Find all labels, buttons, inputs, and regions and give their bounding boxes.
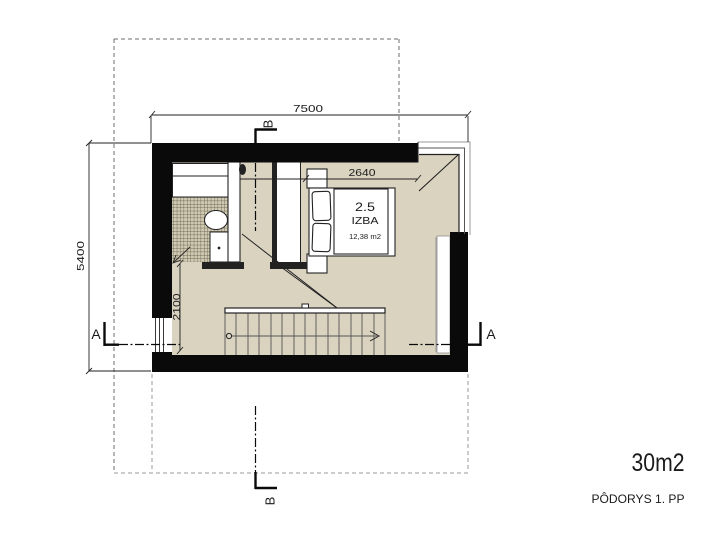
section-marker-a-left: A bbox=[91, 322, 180, 346]
sink-tap bbox=[218, 247, 221, 250]
section-b-label: B bbox=[263, 497, 278, 506]
left-window bbox=[156, 318, 164, 352]
dimension-overall-width: 7500 bbox=[149, 103, 471, 143]
dim-bed-text: 2640 bbox=[349, 168, 377, 179]
wall-top bbox=[152, 143, 418, 163]
closet-left-wall bbox=[272, 162, 277, 262]
wall-right-pillar bbox=[450, 232, 468, 372]
door-handle bbox=[239, 164, 246, 175]
title-block: 30m2 PÔDORYS 1. PP bbox=[592, 449, 685, 506]
wall-niche bbox=[436, 236, 450, 353]
section-a-label: A bbox=[91, 326, 101, 342]
floor-plan-page: 2.5 IZBA 12,38 m2 bbox=[0, 0, 708, 548]
section-b-label: B bbox=[261, 120, 276, 129]
closet bbox=[272, 162, 301, 262]
dim-hall-text: 2100 bbox=[172, 293, 183, 321]
plan-title-label: PÔDORYS 1. PP bbox=[592, 491, 685, 506]
section-a-label: A bbox=[486, 326, 496, 342]
closet-bottom-wall bbox=[270, 262, 307, 269]
bathroom-partition-wall bbox=[228, 162, 240, 262]
room-area: 12,38 m2 bbox=[349, 232, 381, 241]
dim-width-text: 7500 bbox=[293, 103, 323, 115]
toilet bbox=[205, 211, 228, 230]
closet-interior bbox=[277, 162, 300, 262]
wall-bottom bbox=[152, 355, 468, 372]
dimension-overall-height: 5400 bbox=[75, 140, 151, 374]
floor-plan-canvas: 2.5 IZBA 12,38 m2 bbox=[0, 0, 708, 548]
bathtub bbox=[173, 164, 229, 198]
room-number: 2.5 bbox=[355, 200, 375, 214]
plan-area-label: 30m2 bbox=[632, 449, 685, 477]
bathroom-bottom-wall bbox=[202, 262, 244, 269]
section-marker-b-bottom: B bbox=[255, 406, 278, 505]
bathroom bbox=[172, 164, 228, 264]
nightstand-bottom bbox=[307, 254, 327, 273]
room-name: IZBA bbox=[352, 215, 379, 227]
pillow bbox=[312, 223, 331, 252]
wall-left-upper bbox=[152, 143, 172, 318]
pillow bbox=[312, 191, 331, 221]
nightstand-top bbox=[307, 169, 327, 188]
dim-height-text: 5400 bbox=[75, 241, 87, 271]
